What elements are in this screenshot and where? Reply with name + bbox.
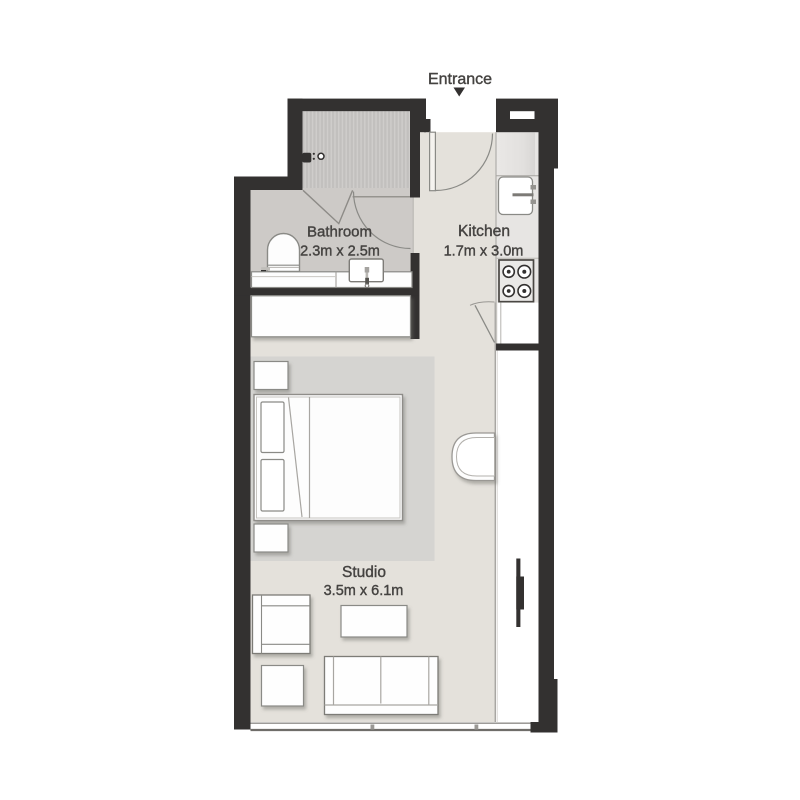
svg-text:Entrance: Entrance <box>428 71 492 88</box>
svg-text:Bathroom: Bathroom <box>307 224 372 241</box>
svg-text:1.7m x 3.0m: 1.7m x 3.0m <box>444 244 524 260</box>
svg-text:2.3m x 2.5m: 2.3m x 2.5m <box>300 244 380 260</box>
svg-text:Studio: Studio <box>342 564 386 581</box>
svg-text:3.5m x 6.1m: 3.5m x 6.1m <box>324 583 404 599</box>
svg-text:Kitchen: Kitchen <box>458 223 510 240</box>
